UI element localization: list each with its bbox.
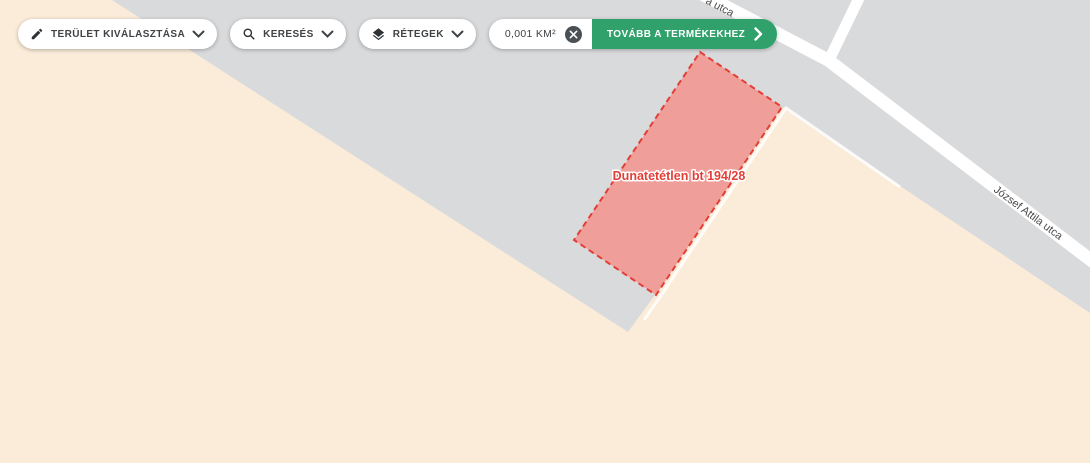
layers-icon xyxy=(371,27,386,42)
layers-label: RÉTEGEK xyxy=(393,29,444,40)
chevron-down-icon xyxy=(451,30,464,38)
map-canvas[interactable]: Dunatetétlen bt 194/28 a utca József Att… xyxy=(0,0,1090,463)
parcel-label: Dunatetétlen bt 194/28 xyxy=(613,169,746,183)
close-icon xyxy=(569,30,578,39)
proceed-label: TOVÁBB A TERMÉKEKHEZ xyxy=(607,29,745,40)
layers-button[interactable]: RÉTEGEK xyxy=(359,19,476,49)
pencil-icon xyxy=(30,27,44,41)
area-proceed-capsule: 0,001 KM² TOVÁBB A TERMÉKEKHEZ xyxy=(489,19,777,49)
map-page: Dunatetétlen bt 194/28 a utca József Att… xyxy=(0,0,1090,463)
area-select-label: TERÜLET KIVÁLASZTÁSA xyxy=(51,29,185,40)
chevron-right-icon xyxy=(754,27,763,41)
toolbar: TERÜLET KIVÁLASZTÁSA KERESÉS xyxy=(18,19,777,49)
selected-area-value: 0,001 KM² xyxy=(505,28,556,40)
chevron-down-icon xyxy=(192,30,205,38)
area-select-button[interactable]: TERÜLET KIVÁLASZTÁSA xyxy=(18,19,217,49)
selected-area-badge: 0,001 KM² xyxy=(489,19,592,49)
search-icon xyxy=(242,27,256,41)
proceed-to-products-button[interactable]: TOVÁBB A TERMÉKEKHEZ xyxy=(592,19,777,49)
chevron-down-icon xyxy=(321,30,334,38)
search-button[interactable]: KERESÉS xyxy=(230,19,346,49)
search-label: KERESÉS xyxy=(263,29,314,40)
clear-selection-button[interactable] xyxy=(565,26,582,43)
